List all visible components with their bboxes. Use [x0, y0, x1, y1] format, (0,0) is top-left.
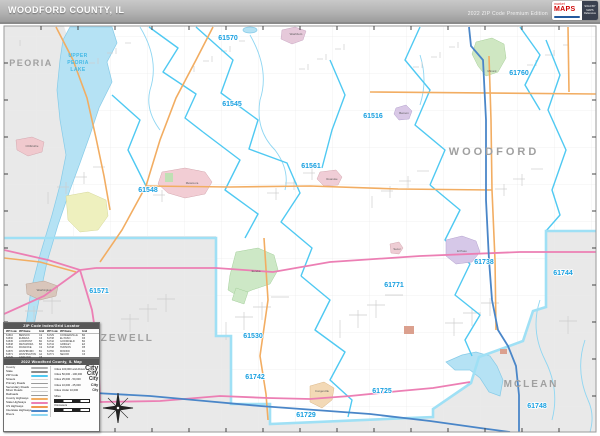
legend-item: Rivers — [6, 413, 48, 417]
title-bar: WOODFORD COUNTY, IL 2022 ZIP Code Premiu… — [0, 0, 600, 24]
zip-code-label: 61570 — [218, 35, 238, 42]
zip-code-label: 61748 — [527, 403, 547, 410]
zip-code-label: 61760 — [509, 70, 529, 77]
city-metamora-park — [165, 173, 173, 182]
city-name-label: Minonk — [487, 69, 497, 73]
county-name-label: PEORIA — [9, 58, 53, 68]
zip-code-label: 61744 — [553, 270, 573, 277]
publisher-logo: market MAPS SOLD BY MAPS Reference — [552, 1, 598, 20]
city-name-label: Eureka — [252, 269, 261, 273]
legend-panel: 2022 Woodford County, IL Map CountyState… — [3, 358, 100, 432]
lake-name-line: PEORIA — [67, 60, 89, 66]
zip-code-label: 61545 — [222, 101, 242, 108]
lake-name-line: UPPER — [68, 53, 87, 59]
zip-code-label: 61725 — [372, 388, 392, 395]
zip-code-label: 61530 — [243, 333, 263, 340]
city-name-label: Washington — [37, 288, 52, 292]
logo-side-line: Reference — [583, 12, 597, 15]
logo-art: market MAPS — [552, 1, 582, 20]
scale-bars: Miles Kilometers — [54, 395, 98, 412]
zip-code-label: 61548 — [138, 187, 158, 194]
city-name-label: Chillicothe — [26, 144, 39, 148]
zip-index-panel: ZIP Code Index/Grid Locator ZIP CodeZIP … — [3, 322, 100, 358]
zip-code-label: 61771 — [384, 282, 404, 289]
legend-city-categories: Cities 100,000 and AboveCityCities 50,00… — [54, 366, 98, 393]
page-title: WOODFORD COUNTY, IL — [8, 5, 125, 15]
logo-side-box: SOLD BY MAPS Reference — [582, 1, 598, 20]
zip-code-label: 61571 — [89, 288, 109, 295]
lake-label: UPPERPEORIALAKE — [67, 53, 89, 73]
city-name-label: Congerville — [315, 389, 329, 393]
city-name-label: Metamora — [186, 181, 199, 185]
city-name-label: Washburn — [290, 32, 303, 36]
zip-code-label: 61742 — [245, 374, 265, 381]
county-name-label: MCLEAN — [504, 379, 559, 390]
zip-code-label: 61516 — [363, 113, 383, 120]
city-name-label: El Paso — [457, 249, 467, 253]
zip-index-rows: 61516BENSONC261729CONGERVILLEB461530EURE… — [4, 334, 99, 360]
lake-name-line: LAKE — [70, 67, 85, 73]
logo-swoosh — [554, 16, 580, 18]
zip-code-label: 61729 — [296, 412, 316, 419]
legend-city-category: Cities Under 10,000City — [54, 388, 98, 393]
county-name-label: WOODFORD — [449, 146, 540, 158]
scale-miles-bar — [54, 399, 90, 403]
city-fleck — [500, 349, 507, 354]
city-name-label: Roanoke — [326, 177, 338, 181]
legend-items: CountyStateZIP CodeStreetsPrimary RoadsS… — [6, 366, 48, 417]
logo-brand-text: MAPS — [554, 6, 580, 13]
city-name-label: Benson — [399, 111, 409, 115]
edition-label: 2022 ZIP Code Premium Edition — [468, 11, 548, 17]
zip-code-label: 61738 — [474, 259, 494, 266]
city-hudson-fleck — [404, 326, 414, 334]
city-name-label: Secor — [393, 247, 400, 251]
zip-code-label: 61561 — [301, 163, 321, 170]
map-page: WOODFORD COUNTY, IL 2022 ZIP Code Premiu… — [0, 0, 600, 436]
scale-km-bar — [54, 408, 90, 412]
